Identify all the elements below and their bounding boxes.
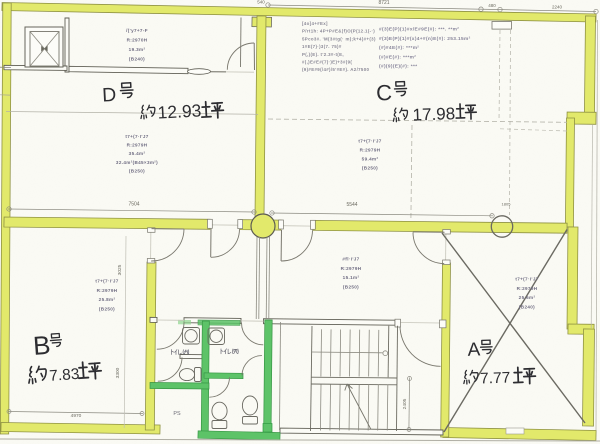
svg-text:(#)#4E(#): ***m²: (#)#4E(#): ***m²: [379, 45, 419, 51]
svg-text:R:2979H: R:2979H: [127, 143, 148, 148]
svg-text:t7+(7·I'J7: t7+(7·I'J7: [515, 277, 538, 282]
svg-text:17.98: 17.98: [412, 104, 455, 124]
svg-text:#(3)E(P)(1)#x/E#9E(#): ***. **: #(3)E(P)(1)#x/E#9E(#): ***. **m²: [379, 27, 459, 33]
svg-text:7.77: 7.77: [480, 369, 511, 387]
svg-text:2405: 2405: [402, 398, 408, 409]
svg-text:t7+(7·I'J7: t7+(7·I'J7: [125, 134, 148, 139]
svg-text:4970: 4970: [71, 413, 82, 419]
svg-text:R:2979H: R:2979H: [517, 286, 538, 291]
svg-text:A: A: [467, 339, 481, 360]
svg-text:(#)#E(#): ***m²: (#)#E(#): ***m²: [379, 54, 416, 60]
svg-text:3025: 3025: [117, 264, 123, 275]
svg-text:C: C: [376, 80, 393, 106]
svg-text:(B240): (B240): [519, 304, 535, 309]
svg-text:/('y7+7-F: /('y7+7-F: [126, 28, 148, 33]
svg-text:25.6m²: 25.6m²: [519, 295, 536, 300]
svg-text:(9)#E#9(/4#)/5'#E#). A2/7500: (9)#E#9(/4#)/5'#E#). A2/7500: [302, 67, 370, 72]
svg-text:R:2979H: R:2979H: [360, 148, 381, 153]
svg-text:t7+(7·I'J7: t7+(7·I'J7: [95, 279, 118, 284]
svg-text:(#)(9)(E)(#): ***: (#)(9)(E)(#): ***: [379, 64, 417, 70]
svg-text:35.4m²: 35.4m²: [129, 151, 146, 156]
svg-text:7.83: 7.83: [49, 366, 80, 385]
svg-text:2240: 2240: [552, 5, 563, 10]
svg-text:1#E(7)·)3(7. 75)#: 1#E(7)·)3(7. 75)#: [302, 44, 342, 49]
svg-text:540: 540: [257, 0, 265, 5]
svg-text:59.4m²: 59.4m²: [362, 157, 379, 162]
svg-text:15.1m²: 15.1m²: [343, 275, 360, 280]
svg-text:#(,)E#E#(7)·)E)+3#(9(: #(,)E#E#(7)·)E)+3#(9(: [302, 60, 352, 65]
svg-text:D: D: [102, 84, 117, 107]
svg-text:t7+(7·I'J7: t7+(7·I'J7: [358, 139, 381, 144]
svg-text:12.93: 12.93: [157, 100, 202, 122]
svg-text:32.4m²(B45×3m²): 32.4m²(B45×3m²): [116, 160, 158, 165]
svg-text:B: B: [32, 330, 51, 361]
svg-text:#(3)E(P)(1)#(x)4+#(n)E(#): 253: #(3)E(P)(1)#(x)4+#(n)E(#): 253.15m²: [379, 36, 471, 42]
svg-text:PS: PS: [173, 411, 181, 417]
svg-text:1805: 1805: [502, 202, 512, 207]
svg-text:5Pco3#. 'M(3#tg(· m);k+4)#+(3): 5Pco3#. 'M(3#tg(· m);k+4)#+(3): [302, 36, 376, 41]
svg-text:R:2970H: R:2970H: [127, 38, 148, 43]
svg-text:P(,)(E). t'2.3#-t(E,: P(,)(E). t'2.3#-t(E,: [302, 52, 344, 57]
svg-text:7504: 7504: [128, 202, 139, 208]
svg-text:#fl·I'J7: #fl·I'J7: [342, 257, 359, 262]
svg-text:(B250): (B250): [362, 166, 378, 171]
svg-text:3300: 3300: [115, 367, 121, 378]
svg-text:R:2979H: R:2979H: [341, 266, 362, 271]
svg-text:(B250): (B250): [129, 168, 145, 173]
svg-text:(B240): (B240): [129, 57, 145, 62]
svg-text:480: 480: [488, 3, 496, 8]
svg-text:(B250): (B250): [343, 284, 359, 289]
svg-text:P/rt1h: 4P+P#E&(f)O(P(12.1(-·): P/rt1h: 4P+P#E&(f)O(P(12.1(-·): [302, 29, 375, 34]
svg-text:5544: 5544: [346, 202, 357, 208]
svg-text:(B250): (B250): [99, 306, 115, 311]
svg-text:[4o]4+#Ex]: [4o]4+#Ex]: [302, 21, 328, 26]
svg-text:8721: 8721: [378, 0, 389, 6]
svg-text:19.3m²: 19.3m²: [129, 47, 146, 52]
svg-text:R:2979H: R:2979H: [97, 288, 118, 293]
svg-text:25.8m²: 25.8m²: [99, 297, 116, 302]
